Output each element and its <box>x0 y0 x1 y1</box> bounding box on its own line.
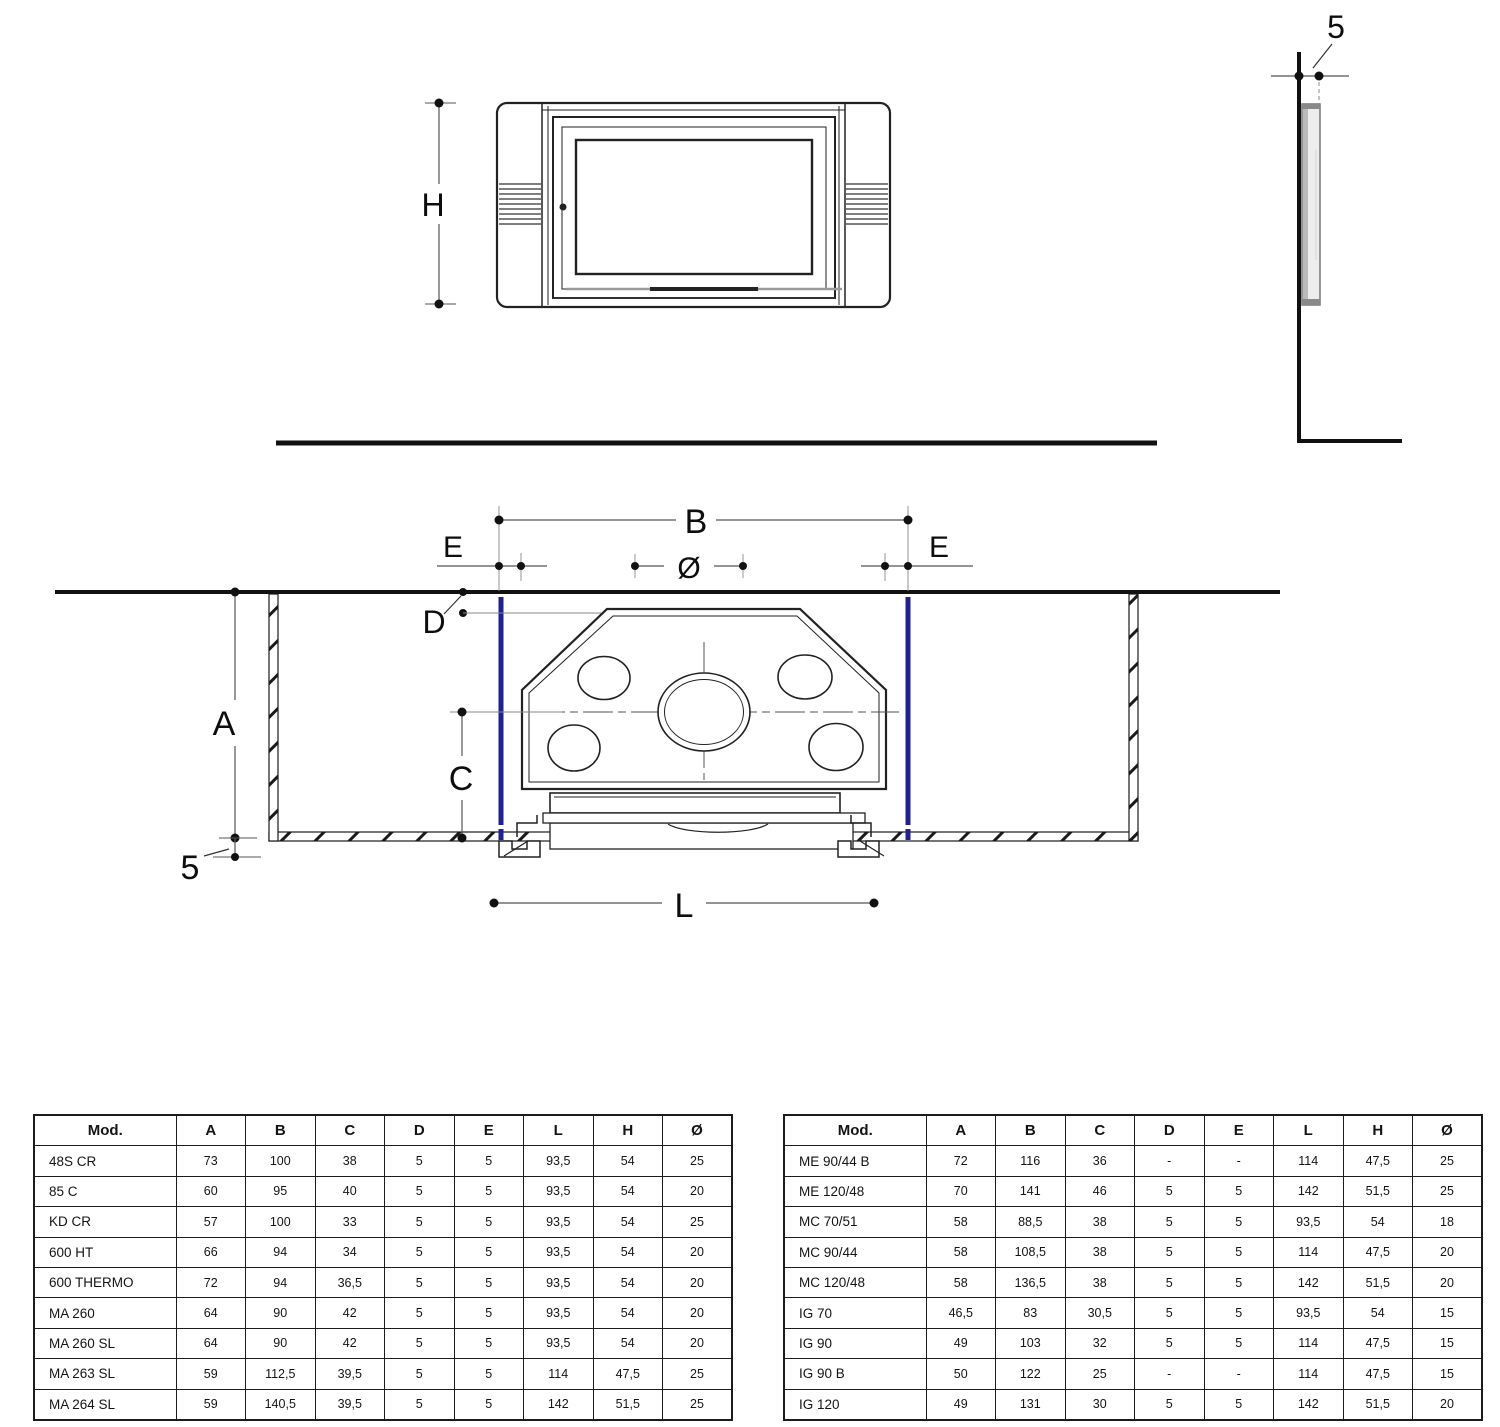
dimension-value-cell: 39,5 <box>315 1389 385 1420</box>
dimension-value-cell: 5 <box>1135 1176 1205 1206</box>
dimension-value-cell: 54 <box>593 1328 663 1358</box>
dimension-value-cell: 42 <box>315 1328 385 1358</box>
dimension-value-cell: 38 <box>1065 1207 1135 1237</box>
dimension-value-cell: 50 <box>926 1359 996 1389</box>
dimension-value-cell: 70 <box>926 1176 996 1206</box>
dimension-value-cell: 58 <box>926 1237 996 1267</box>
model-name-cell: ME 90/44 B <box>784 1146 926 1176</box>
dimension-value-cell: 114 <box>524 1359 594 1389</box>
dimension-value-cell: 49 <box>926 1328 996 1358</box>
dimension-value-cell: - <box>1135 1146 1205 1176</box>
fireplace-dimension-drawing: H 5 <box>0 0 1500 1105</box>
dimension-value-cell: 5 <box>1204 1328 1274 1358</box>
dimension-value-cell: 47,5 <box>1343 1146 1413 1176</box>
model-name-cell: MA 263 SL <box>34 1359 176 1389</box>
column-header: H <box>593 1115 663 1146</box>
column-header: D <box>385 1115 455 1146</box>
dimension-value-cell: 116 <box>996 1146 1066 1176</box>
model-name-cell: MC 90/44 <box>784 1237 926 1267</box>
model-name-cell: ME 120/48 <box>784 1176 926 1206</box>
dim-label-5-side: 5 <box>1327 9 1345 45</box>
dimension-value-cell: 5 <box>454 1298 524 1328</box>
dim-label-e-right: E <box>929 531 949 564</box>
dimension-value-cell: - <box>1204 1146 1274 1176</box>
dimension-value-cell: 140,5 <box>246 1389 316 1420</box>
dimension-value-cell: 15 <box>1413 1359 1483 1389</box>
column-header: C <box>1065 1115 1135 1146</box>
dimension-value-cell: 93,5 <box>524 1207 594 1237</box>
dimension-value-cell: 58 <box>926 1267 996 1297</box>
dimension-value-cell: 136,5 <box>996 1267 1066 1297</box>
dimension-value-cell: 100 <box>246 1146 316 1176</box>
technical-drawing-sheet: H 5 <box>0 0 1500 1427</box>
dimension-value-cell: 47,5 <box>1343 1237 1413 1267</box>
dimension-value-cell: 5 <box>385 1237 455 1267</box>
column-header: H <box>1343 1115 1413 1146</box>
dim-h: H <box>420 99 458 309</box>
column-header: Mod. <box>784 1115 926 1146</box>
column-header: Ø <box>663 1115 733 1146</box>
dimension-value-cell: 20 <box>663 1267 733 1297</box>
table-row: ME 90/44 B7211636--11447,525 <box>784 1146 1482 1176</box>
dimension-value-cell: 5 <box>1204 1237 1274 1267</box>
dimension-value-cell: 5 <box>1204 1176 1274 1206</box>
dimension-value-cell: 73 <box>176 1146 246 1176</box>
dimension-value-cell: 51,5 <box>593 1389 663 1420</box>
dimension-value-cell: 114 <box>1274 1146 1344 1176</box>
table-header-row: Mod.ABCDELHØ <box>784 1115 1482 1146</box>
table-row: MC 70/515888,5385593,55418 <box>784 1207 1482 1237</box>
dimension-value-cell: 5 <box>454 1176 524 1206</box>
dimension-value-cell: 5 <box>385 1207 455 1237</box>
table-row: IG 7046,58330,55593,55415 <box>784 1298 1482 1328</box>
dimension-value-cell: 20 <box>1413 1389 1483 1420</box>
dim-label-c: C <box>449 760 474 798</box>
dimension-value-cell: 58 <box>926 1207 996 1237</box>
dimension-value-cell: 93,5 <box>524 1237 594 1267</box>
dimension-value-cell: 38 <box>1065 1267 1135 1297</box>
dim-label-5-plan: 5 <box>181 849 200 887</box>
dimension-value-cell: 5 <box>1135 1298 1205 1328</box>
dimension-value-cell: 5 <box>1204 1298 1274 1328</box>
dimension-value-cell: 20 <box>663 1298 733 1328</box>
dimension-value-cell: 93,5 <box>1274 1298 1344 1328</box>
top-circle <box>809 724 863 771</box>
dimension-value-cell: 20 <box>663 1176 733 1206</box>
dimension-value-cell: 94 <box>246 1237 316 1267</box>
dimension-value-cell: 93,5 <box>1274 1207 1344 1237</box>
dimension-value-cell: 30 <box>1065 1389 1135 1420</box>
dimension-value-cell: - <box>1204 1359 1274 1389</box>
dimension-value-cell: 32 <box>1065 1328 1135 1358</box>
niche-right-wall <box>1129 594 1138 841</box>
dimension-value-cell: 20 <box>1413 1237 1483 1267</box>
dimensions-table-right: Mod.ABCDELHØME 90/44 B7211636--11447,525… <box>783 1114 1483 1421</box>
dimension-value-cell: 5 <box>385 1298 455 1328</box>
dimension-value-cell: 5 <box>454 1328 524 1358</box>
dimension-value-cell: 5 <box>454 1359 524 1389</box>
dimension-value-cell: 47,5 <box>1343 1359 1413 1389</box>
dimension-value-cell: 54 <box>593 1237 663 1267</box>
dim-label-l: L <box>675 887 694 925</box>
model-name-cell: IG 70 <box>784 1298 926 1328</box>
dim-l: L <box>490 887 879 925</box>
dimension-value-cell: 131 <box>996 1389 1066 1420</box>
top-circle <box>778 655 832 699</box>
dimension-value-cell: 57 <box>176 1207 246 1237</box>
dimension-value-cell: 51,5 <box>1343 1389 1413 1420</box>
dimension-value-cell: 5 <box>385 1389 455 1420</box>
model-name-cell: IG 90 B <box>784 1359 926 1389</box>
dimension-value-cell: 5 <box>454 1207 524 1237</box>
dimension-value-cell: 64 <box>176 1298 246 1328</box>
flue-outlet-circle <box>658 673 750 751</box>
model-name-cell: 85 C <box>34 1176 176 1206</box>
dimension-value-cell: 103 <box>996 1328 1066 1358</box>
dim-label-h: H <box>421 187 444 223</box>
column-header: B <box>996 1115 1066 1146</box>
dimension-value-cell: 114 <box>1274 1328 1344 1358</box>
dimension-value-cell: 93,5 <box>524 1298 594 1328</box>
dim-label-b: B <box>685 503 708 541</box>
model-name-cell: 48S CR <box>34 1146 176 1176</box>
column-header: B <box>246 1115 316 1146</box>
dimension-value-cell: 25 <box>663 1389 733 1420</box>
table-row: KD CR57100335593,55425 <box>34 1207 732 1237</box>
dim-d: D <box>422 588 601 640</box>
dimension-value-cell: 33 <box>315 1207 385 1237</box>
dim-b: B <box>495 503 913 591</box>
dimension-value-cell: 54 <box>593 1298 663 1328</box>
model-name-cell: IG 120 <box>784 1389 926 1420</box>
column-header: L <box>1274 1115 1344 1146</box>
dimension-value-cell: 49 <box>926 1389 996 1420</box>
dimension-value-cell: 42 <box>315 1298 385 1328</box>
dimension-value-cell: 54 <box>1343 1207 1413 1237</box>
dimension-value-cell: 54 <box>593 1207 663 1237</box>
dimension-value-cell: 39,5 <box>315 1359 385 1389</box>
model-name-cell: MA 260 <box>34 1298 176 1328</box>
dimension-value-cell: 83 <box>996 1298 1066 1328</box>
dimension-value-cell: 46 <box>1065 1176 1135 1206</box>
dim-label-d: D <box>422 604 445 640</box>
dimension-value-cell: 54 <box>593 1267 663 1297</box>
dimension-value-cell: 93,5 <box>524 1267 594 1297</box>
model-name-cell: MC 70/51 <box>784 1207 926 1237</box>
dim-diameter: Ø <box>631 552 747 585</box>
table-row: MA 2606490425593,55420 <box>34 1298 732 1328</box>
dim-5-plan: 5 <box>181 838 261 887</box>
dim-5-side: 5 <box>1271 9 1349 104</box>
dimension-value-cell: 142 <box>1274 1176 1344 1206</box>
dimension-value-cell: 25 <box>663 1207 733 1237</box>
model-name-cell: MC 120/48 <box>784 1267 926 1297</box>
column-header: A <box>176 1115 246 1146</box>
dimension-value-cell: 20 <box>1413 1267 1483 1297</box>
dimension-value-cell: 51,5 <box>1343 1267 1413 1297</box>
top-circle <box>578 657 630 700</box>
column-header: E <box>454 1115 524 1146</box>
door-handle <box>560 204 567 211</box>
dimension-value-cell: 38 <box>1065 1237 1135 1267</box>
dimension-value-cell: 54 <box>593 1176 663 1206</box>
model-name-cell: KD CR <box>34 1207 176 1237</box>
dimension-value-cell: 5 <box>1204 1207 1274 1237</box>
dimension-value-cell: 93,5 <box>524 1328 594 1358</box>
niche-left-wall <box>269 594 278 841</box>
model-name-cell: MA 264 SL <box>34 1389 176 1420</box>
column-header: Mod. <box>34 1115 176 1146</box>
dimension-value-cell: 114 <box>1274 1237 1344 1267</box>
dimension-value-cell: 72 <box>176 1267 246 1297</box>
column-header: Ø <box>1413 1115 1483 1146</box>
dimension-value-cell: 5 <box>385 1176 455 1206</box>
dimension-value-cell: 15 <box>1413 1298 1483 1328</box>
dimension-value-cell: 5 <box>1204 1267 1274 1297</box>
dimension-value-cell: 108,5 <box>996 1237 1066 1267</box>
front-view: H <box>420 99 890 309</box>
dim-label-a: A <box>213 705 236 743</box>
dimension-value-cell: 5 <box>1135 1237 1205 1267</box>
dimension-value-cell: 93,5 <box>524 1176 594 1206</box>
column-header: A <box>926 1115 996 1146</box>
top-circle <box>548 725 600 771</box>
dimension-value-cell: 59 <box>176 1389 246 1420</box>
dimension-value-cell: 15 <box>1413 1328 1483 1358</box>
dimension-value-cell: 64 <box>176 1328 246 1358</box>
dimension-value-cell: 59 <box>176 1359 246 1389</box>
dimension-value-cell: - <box>1135 1359 1205 1389</box>
table-header-row: Mod.ABCDELHØ <box>34 1115 732 1146</box>
table-row: 600 HT6694345593,55420 <box>34 1237 732 1267</box>
dimension-value-cell: 5 <box>385 1359 455 1389</box>
dimension-value-cell: 66 <box>176 1237 246 1267</box>
dimension-value-cell: 47,5 <box>593 1359 663 1389</box>
dim-e-right: E <box>861 531 973 581</box>
dimension-value-cell: 112,5 <box>246 1359 316 1389</box>
dimension-value-cell: 5 <box>385 1328 455 1358</box>
dimension-value-cell: 122 <box>996 1359 1066 1389</box>
column-header: D <box>1135 1115 1205 1146</box>
table-row: 600 THERMO729436,55593,55420 <box>34 1267 732 1297</box>
dimension-value-cell: 54 <box>1343 1298 1413 1328</box>
dim-label-diameter: Ø <box>677 552 700 585</box>
dimension-value-cell: 114 <box>1274 1359 1344 1389</box>
dimension-value-cell: 5 <box>454 1237 524 1267</box>
table-row: 85 C6095405593,55420 <box>34 1176 732 1206</box>
dimension-value-cell: 36,5 <box>315 1267 385 1297</box>
dimension-value-cell: 142 <box>1274 1389 1344 1420</box>
dimension-value-cell: 5 <box>1135 1267 1205 1297</box>
dimension-value-cell: 18 <box>1413 1207 1483 1237</box>
model-name-cell: MA 260 SL <box>34 1328 176 1358</box>
dimension-value-cell: 47,5 <box>1343 1328 1413 1358</box>
dim-e-left: E <box>437 531 547 581</box>
dimension-value-cell: 95 <box>246 1176 316 1206</box>
dimension-value-cell: 5 <box>1135 1389 1205 1420</box>
dimension-value-cell: 142 <box>524 1389 594 1420</box>
dimension-value-cell: 40 <box>315 1176 385 1206</box>
dimension-value-cell: 36 <box>1065 1146 1135 1176</box>
dimension-value-cell: 25 <box>1065 1359 1135 1389</box>
table-row: MA 264 SL59140,539,55514251,525 <box>34 1389 732 1420</box>
side-view: 5 <box>1271 9 1402 441</box>
dim-a: A <box>207 588 243 843</box>
table-row: IG 9049103325511447,515 <box>784 1328 1482 1358</box>
dimension-value-cell: 5 <box>454 1267 524 1297</box>
column-header: L <box>524 1115 594 1146</box>
model-name-cell: IG 90 <box>784 1328 926 1358</box>
dimension-value-cell: 5 <box>385 1267 455 1297</box>
dimension-value-cell: 46,5 <box>926 1298 996 1328</box>
dim-label-e-left: E <box>443 531 463 564</box>
dimension-value-cell: 93,5 <box>524 1146 594 1176</box>
dimension-value-cell: 90 <box>246 1298 316 1328</box>
dimension-value-cell: 25 <box>663 1359 733 1389</box>
table-row: IG 12049131305514251,520 <box>784 1389 1482 1420</box>
dimension-value-cell: 5 <box>1135 1207 1205 1237</box>
table-row: 48S CR73100385593,55425 <box>34 1146 732 1176</box>
dimension-value-cell: 25 <box>1413 1146 1483 1176</box>
dimension-value-cell: 90 <box>246 1328 316 1358</box>
dimension-value-cell: 5 <box>1204 1389 1274 1420</box>
dimension-value-cell: 25 <box>663 1146 733 1176</box>
column-header: E <box>1204 1115 1274 1146</box>
dimension-value-cell: 54 <box>593 1146 663 1176</box>
table-row: MA 260 SL6490425593,55420 <box>34 1328 732 1358</box>
dimension-value-cell: 5 <box>1135 1328 1205 1358</box>
dimension-value-cell: 51,5 <box>1343 1176 1413 1206</box>
dimension-value-cell: 20 <box>663 1328 733 1358</box>
dimension-value-cell: 94 <box>246 1267 316 1297</box>
door-glass <box>576 140 812 274</box>
dimension-value-cell: 100 <box>246 1207 316 1237</box>
dimension-value-cell: 60 <box>176 1176 246 1206</box>
dimension-value-cell: 20 <box>663 1237 733 1267</box>
dimension-value-cell: 72 <box>926 1146 996 1176</box>
table-row: MC 90/4458108,5385511447,520 <box>784 1237 1482 1267</box>
dimension-value-cell: 30,5 <box>1065 1298 1135 1328</box>
dimension-value-cell: 5 <box>454 1389 524 1420</box>
table-row: MA 263 SL59112,539,55511447,525 <box>34 1359 732 1389</box>
dimension-value-cell: 142 <box>1274 1267 1344 1297</box>
plan-view: B E E Ø <box>55 503 1280 925</box>
model-name-cell: 600 HT <box>34 1237 176 1267</box>
table-row: IG 90 B5012225--11447,515 <box>784 1359 1482 1389</box>
column-header: C <box>315 1115 385 1146</box>
dimension-value-cell: 5 <box>454 1146 524 1176</box>
dimension-value-cell: 5 <box>385 1146 455 1176</box>
table-row: MC 120/4858136,5385514251,520 <box>784 1267 1482 1297</box>
dimensions-table-left: Mod.ABCDELHØ48S CR73100385593,5542585 C6… <box>33 1114 733 1421</box>
dimension-value-cell: 88,5 <box>996 1207 1066 1237</box>
model-name-cell: 600 THERMO <box>34 1267 176 1297</box>
dimension-value-cell: 25 <box>1413 1176 1483 1206</box>
table-row: ME 120/4870141465514251,525 <box>784 1176 1482 1206</box>
dimension-value-cell: 38 <box>315 1146 385 1176</box>
dimension-value-cell: 34 <box>315 1237 385 1267</box>
dimension-value-cell: 141 <box>996 1176 1066 1206</box>
